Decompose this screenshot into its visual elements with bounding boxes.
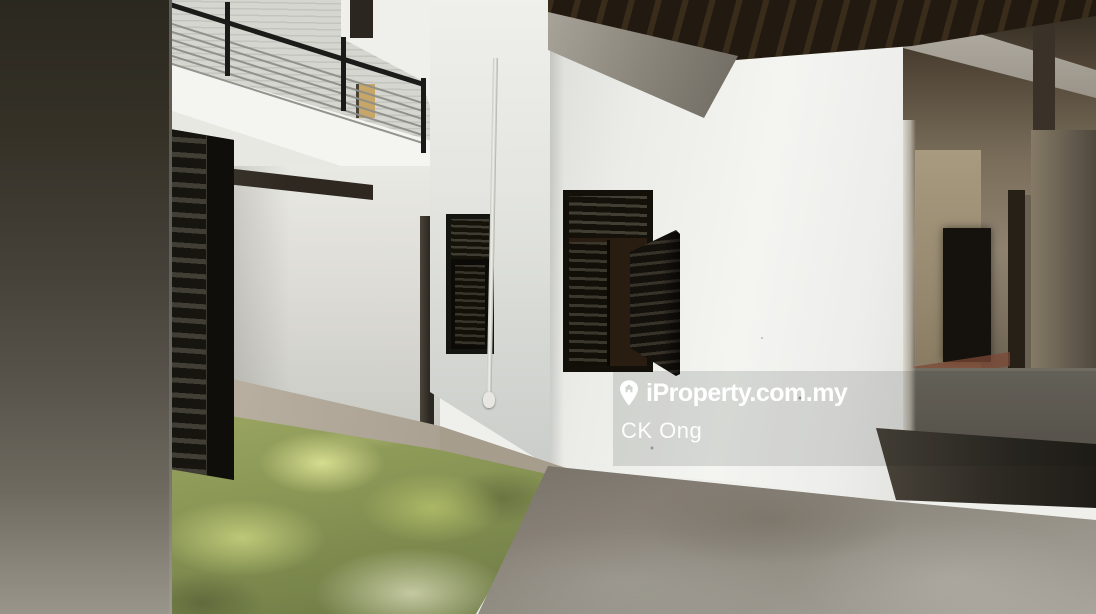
drain-pipe-outlet [483, 392, 495, 408]
watermark-agent-name: CK Ong [621, 420, 702, 442]
louvered-shutter-door [164, 124, 234, 484]
watermark-brand-text: iProperty.com.my [646, 381, 847, 406]
railing-post [421, 78, 426, 153]
property-photo: iProperty.com.my CK Ong [0, 0, 1096, 614]
watermark-logo: iProperty.com.my [620, 380, 847, 406]
railing-post [225, 2, 230, 76]
foreground-wall [0, 0, 172, 614]
location-pin-house-icon [620, 380, 638, 406]
railing-post [341, 37, 346, 111]
shutter-louvers [451, 219, 489, 259]
shutter-frame-divider [607, 240, 610, 366]
upper-doorway-shadow [350, 0, 373, 38]
shutter-frame [206, 124, 235, 484]
shutter-louvers [166, 124, 206, 484]
shutter-louvers [455, 265, 485, 345]
shutter-louvers [569, 196, 647, 238]
shutter-louvers [569, 242, 607, 366]
corridor-dark-doorway [943, 228, 991, 362]
